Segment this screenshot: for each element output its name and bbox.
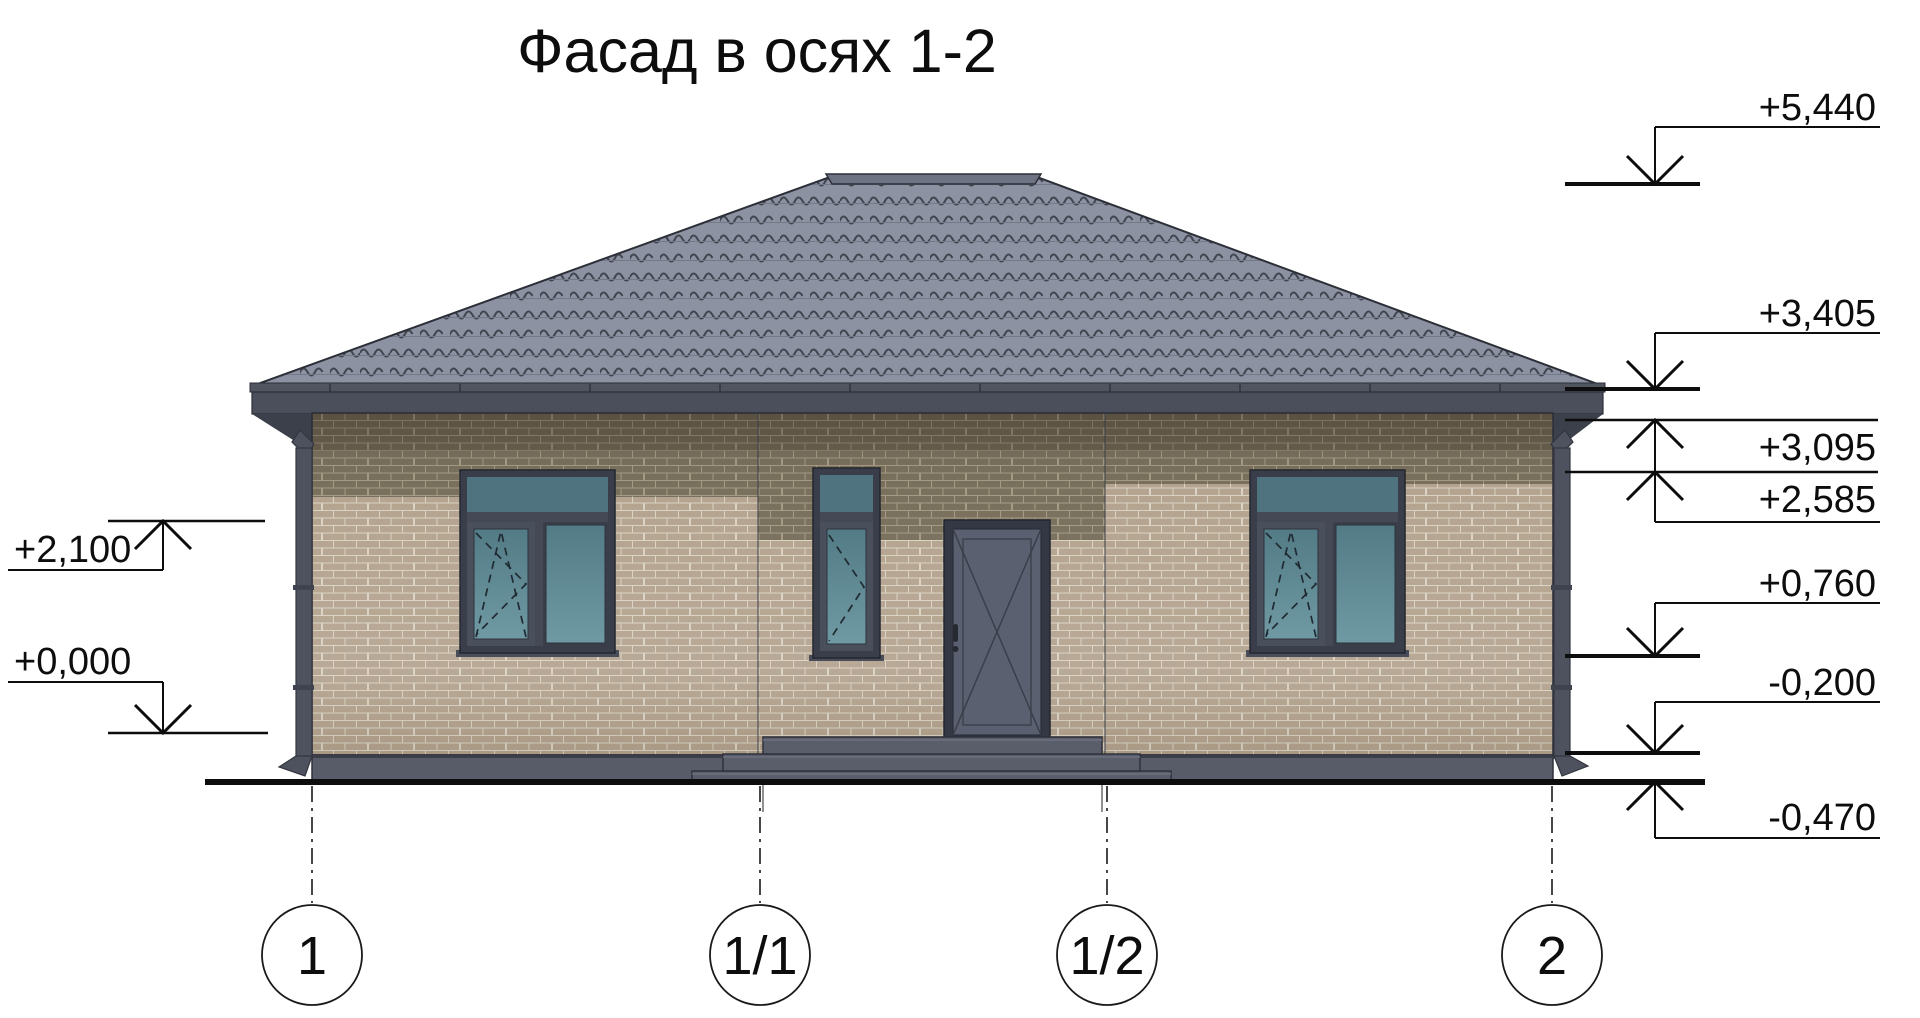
porch-foundation-lines bbox=[763, 785, 1102, 812]
window-left-mullion bbox=[535, 522, 543, 646]
window-middle bbox=[809, 468, 884, 661]
window-right-transom-glass bbox=[1257, 477, 1398, 512]
elevation-marker-plus3095: +3,095 bbox=[1565, 420, 1878, 469]
axis-bubble-1-2-label: 1/2 bbox=[1069, 926, 1144, 986]
window-right-fixed-glass bbox=[1336, 525, 1395, 643]
window-left bbox=[456, 470, 619, 657]
window-middle-transom-glass bbox=[820, 475, 873, 512]
window-right-casement-glass bbox=[1264, 529, 1318, 639]
elevation-label-plus0000: +0,000 bbox=[14, 641, 131, 683]
fascia-board bbox=[252, 392, 1603, 414]
window-middle-casement-glass bbox=[827, 529, 866, 644]
porch-steps bbox=[692, 737, 1171, 782]
entrance-door bbox=[944, 520, 1050, 737]
window-left-fixed-glass bbox=[546, 525, 605, 643]
window-right-mullion bbox=[1325, 522, 1333, 646]
axis-bubble-1-1: 1/1 bbox=[710, 905, 810, 1005]
axis-bubble-2: 2 bbox=[1502, 905, 1602, 1005]
elevation-label-minus0200: -0,200 bbox=[1768, 662, 1876, 704]
downpipe-left bbox=[279, 430, 314, 776]
roof-slope bbox=[252, 177, 1603, 386]
elevation-label-plus3405: +3,405 bbox=[1759, 293, 1876, 335]
elevation-label-plus2585: +2,585 bbox=[1759, 479, 1876, 521]
facade-drawing: Фасад в осях 1-2 bbox=[0, 0, 1920, 1018]
door-handle-icon bbox=[953, 624, 959, 652]
window-middle-transom-bar bbox=[820, 512, 873, 522]
axis-bubble-1-label: 1 bbox=[297, 926, 327, 986]
elevation-marker-minus0470: -0,470 bbox=[1627, 782, 1880, 839]
window-left-transom-glass bbox=[467, 477, 608, 512]
elevation-marker-plus5440: +5,440 bbox=[1565, 87, 1880, 184]
window-left-casement-glass bbox=[474, 529, 528, 639]
elevation-label-plus5440: +5,440 bbox=[1759, 87, 1876, 129]
elevation-marker-plus0000: +0,000 bbox=[8, 641, 268, 733]
roof-ridge bbox=[826, 174, 1041, 184]
gutter bbox=[250, 383, 1605, 392]
page-title: Фасад в осях 1-2 bbox=[517, 17, 997, 85]
downpipe-right bbox=[1551, 430, 1588, 776]
elevation-marker-plus3405: +3,405 bbox=[1565, 293, 1880, 389]
elevation-marker-plus2100: +2,100 bbox=[8, 521, 265, 571]
axis-bubble-2-label: 2 bbox=[1537, 926, 1567, 986]
elevation-label-plus0760: +0,760 bbox=[1759, 563, 1876, 605]
elevation-marker-plus0760: +0,760 bbox=[1565, 563, 1880, 656]
window-left-transom-bar bbox=[467, 512, 608, 522]
elevation-label-plus3095: +3,095 bbox=[1759, 427, 1876, 469]
axis-bubble-1-1-label: 1/1 bbox=[722, 926, 797, 986]
elevation-label-plus2100: +2,100 bbox=[14, 529, 131, 571]
axes: 1 1/1 1/2 2 bbox=[262, 786, 1602, 1005]
axis-bubble-1: 1 bbox=[262, 905, 362, 1005]
elevation-marker-minus0200: -0,200 bbox=[1565, 662, 1880, 753]
window-right bbox=[1246, 470, 1409, 657]
roof bbox=[252, 174, 1603, 386]
elevation-label-minus0470: -0,470 bbox=[1768, 797, 1876, 839]
window-right-transom-bar bbox=[1257, 512, 1398, 522]
axis-bubble-1-2: 1/2 bbox=[1057, 905, 1157, 1005]
